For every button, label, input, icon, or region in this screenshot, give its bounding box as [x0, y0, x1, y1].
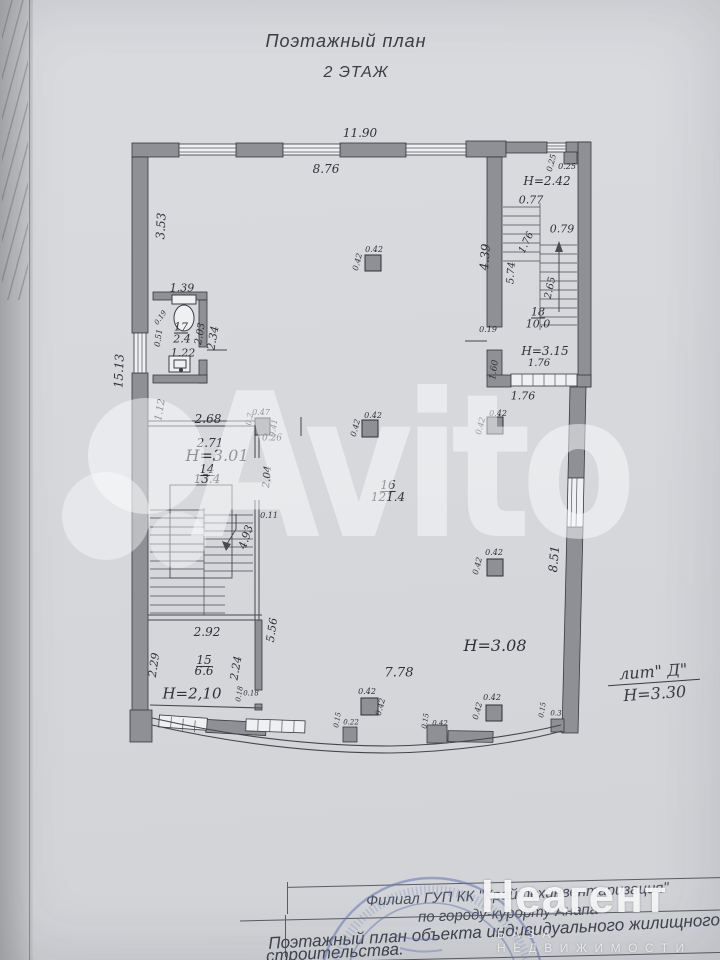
toilet-icon [172, 295, 196, 304]
sheet: Поэтажный план 2 ЭТАЖ [0, 0, 720, 960]
bathroom-fixtures [169, 295, 196, 372]
title-block-line [287, 882, 288, 914]
stairs-block-topright [503, 203, 577, 330]
walls-group [130, 141, 591, 743]
liter-note: лит" Д" Н=3.30 [607, 659, 702, 706]
floorplan-drawing [0, 0, 720, 960]
document-photo: Поэтажный план 2 ЭТАЖ [0, 0, 720, 960]
windows-group [134, 143, 584, 733]
toilet-bowl-icon [174, 305, 194, 331]
partitions-group [148, 341, 487, 708]
stairs-main [150, 485, 253, 615]
columns-group [255, 255, 503, 721]
